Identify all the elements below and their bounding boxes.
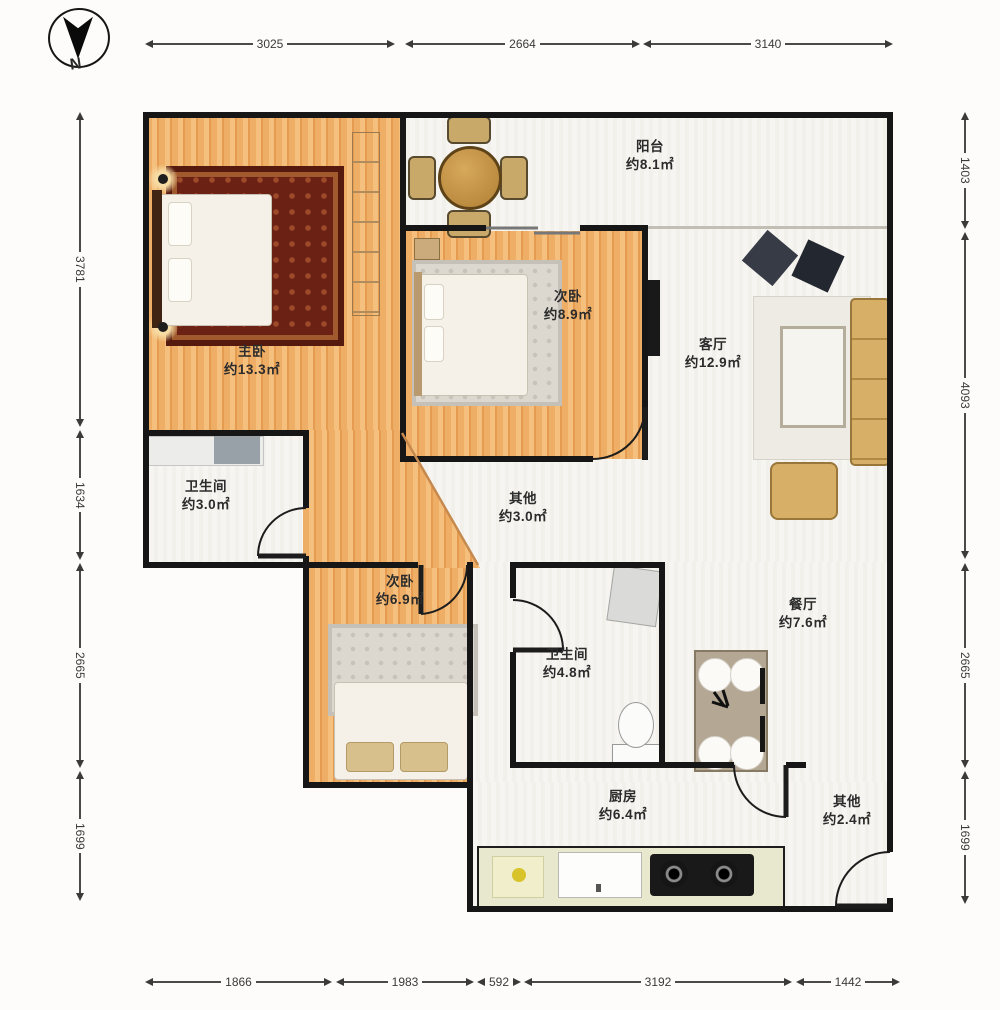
burner-icon: [710, 860, 738, 888]
dim-line: [964, 188, 966, 221]
dim-line: [79, 683, 81, 760]
dim-left-4: 1699: [73, 771, 87, 901]
wall-segment: [303, 782, 473, 788]
wall-segment: [303, 430, 309, 508]
dim-line: [413, 43, 505, 45]
dim-line: [675, 981, 784, 983]
wall-segment: [143, 562, 309, 568]
nightstand: [414, 238, 440, 260]
bedside-lamp: [158, 174, 168, 184]
room-name: 次卧: [488, 288, 648, 306]
dim-line: [79, 438, 81, 478]
wall-segment: [659, 562, 665, 768]
pillow: [168, 202, 192, 246]
pillow: [424, 284, 444, 320]
wall-segment: [887, 112, 893, 852]
room-area: 约6.4㎡: [548, 806, 698, 824]
arrow-left-icon: [145, 40, 153, 48]
room-area: 约3.0㎡: [136, 496, 276, 514]
dim-bottom-4: 3192: [524, 975, 792, 989]
burner-icon: [660, 860, 688, 888]
dim-line: [79, 779, 81, 819]
floorplan-canvas: N 3025 2664 3140 1866 1983 592 3192 1: [0, 0, 1000, 1010]
room-name: 其他: [448, 490, 598, 508]
round-table: [438, 146, 502, 210]
arrow-down-icon: [76, 893, 84, 901]
dim-top-3: 3140: [643, 37, 893, 51]
dim-line: [964, 413, 966, 551]
room-name: 主卧: [177, 343, 327, 361]
room-area: 约2.4㎡: [772, 811, 922, 829]
dim-value: 3192: [641, 976, 676, 988]
room-label-dining: 餐厅 约7.6㎡: [728, 596, 878, 631]
arrow-left-icon: [796, 978, 804, 986]
arrow-right-icon: [513, 978, 521, 986]
plate: [730, 736, 764, 770]
dim-right-3: 2665: [958, 563, 972, 768]
arrow-left-icon: [145, 978, 153, 986]
arrow-down-icon: [961, 896, 969, 904]
dim-line: [964, 683, 966, 760]
room-label-other1: 其他 约3.0㎡: [448, 490, 598, 525]
dim-value: 1866: [221, 976, 256, 988]
room-label-bedroom2: 次卧 约8.9㎡: [488, 288, 648, 323]
dim-line: [256, 981, 324, 983]
dim-value: 1403: [959, 153, 971, 188]
room-name: 阳台: [560, 138, 740, 156]
room-name: 次卧: [325, 573, 475, 591]
dim-line: [344, 981, 388, 983]
arrow-up-icon: [961, 232, 969, 240]
room-area: 约12.9㎡: [638, 354, 788, 372]
dim-line: [804, 981, 831, 983]
sink: [214, 436, 260, 464]
room-name: 厨房: [548, 788, 698, 806]
bedside-lamp: [158, 322, 168, 332]
arrow-left-icon: [336, 978, 344, 986]
dim-line: [865, 981, 892, 983]
wall-segment: [786, 762, 806, 768]
dim-right-2: 4093: [958, 232, 972, 559]
bed-headboard: [152, 190, 162, 328]
arrow-up-icon: [961, 771, 969, 779]
wall-segment: [303, 562, 418, 568]
dim-top-1: 3025: [145, 37, 395, 51]
dim-left-2: 1634: [73, 430, 87, 560]
room-area: 约8.9㎡: [488, 306, 648, 324]
dim-line: [964, 855, 966, 896]
arrow-up-icon: [76, 771, 84, 779]
dim-value: 2665: [74, 648, 86, 683]
dim-value: 1699: [959, 820, 971, 855]
room-area: 约3.0㎡: [448, 508, 598, 526]
arrow-left-icon: [477, 978, 485, 986]
room-area: 约6.9㎡: [325, 591, 475, 609]
wall-segment: [467, 782, 473, 912]
room-name: 其他: [772, 793, 922, 811]
arrow-left-icon: [524, 978, 532, 986]
arrow-left-icon: [405, 40, 413, 48]
balcony-chair: [447, 116, 491, 144]
arrow-right-icon: [632, 40, 640, 48]
wall-segment: [143, 112, 893, 118]
arrow-right-icon: [324, 978, 332, 986]
dim-line: [153, 43, 253, 45]
compass: N: [44, 4, 118, 80]
fruit-bowl: [512, 868, 526, 882]
wall-segment: [659, 762, 734, 768]
plate: [698, 658, 732, 692]
dim-line: [422, 981, 466, 983]
wall-segment: [400, 112, 406, 462]
bed-headboard: [414, 272, 422, 396]
dim-left-1: 3781: [73, 112, 87, 427]
dim-value: 2665: [959, 648, 971, 683]
room-area: 约8.1㎡: [560, 156, 740, 174]
dim-line: [785, 43, 885, 45]
room-label-bath2: 卫生间 约4.8㎡: [492, 646, 642, 681]
dim-bottom-3: 592: [477, 975, 521, 989]
dim-line: [532, 981, 641, 983]
arrow-down-icon: [76, 419, 84, 427]
room-label-bath1: 卫生间 约3.0㎡: [136, 478, 276, 513]
dim-value: 1699: [74, 819, 86, 854]
room-label-living: 客厅 约12.9㎡: [638, 336, 788, 371]
room-label-master: 主卧 约13.3㎡: [177, 343, 327, 378]
wall-segment: [580, 225, 648, 231]
dim-bottom-1: 1866: [145, 975, 332, 989]
pillow: [424, 326, 444, 362]
arrow-right-icon: [892, 978, 900, 986]
dim-line: [79, 287, 81, 419]
dim-line: [964, 240, 966, 378]
wall-segment: [510, 562, 516, 598]
room-name: 餐厅: [728, 596, 878, 614]
arrow-right-icon: [466, 978, 474, 986]
dim-line: [964, 779, 966, 820]
room-area: 约13.3㎡: [177, 361, 327, 379]
coffee-table: [780, 326, 846, 428]
wall-segment: [887, 898, 893, 912]
wall-segment: [402, 456, 593, 462]
arrow-up-icon: [76, 430, 84, 438]
compass-north-label: N: [69, 55, 83, 74]
arrow-down-icon: [76, 760, 84, 768]
wall-segment: [143, 430, 309, 436]
room-area: 约7.6㎡: [728, 614, 878, 632]
dim-right-1: 1403: [958, 112, 972, 229]
pillow: [346, 742, 394, 772]
sofa: [850, 298, 890, 466]
arrow-down-icon: [76, 552, 84, 560]
dim-line: [153, 981, 221, 983]
dim-value: 1983: [388, 976, 423, 988]
room-label-other2: 其他 约2.4㎡: [772, 793, 922, 828]
dim-value: 4093: [959, 378, 971, 413]
arrow-down-icon: [961, 760, 969, 768]
dim-value: 592: [485, 976, 513, 988]
arrow-left-icon: [643, 40, 651, 48]
dim-value: 2664: [505, 38, 540, 50]
toilet-bowl: [618, 702, 654, 748]
arrow-right-icon: [387, 40, 395, 48]
dim-line: [79, 571, 81, 648]
wall-segment: [303, 562, 309, 788]
plate: [730, 658, 764, 692]
dim-left-3: 2665: [73, 563, 87, 768]
dim-line: [540, 43, 632, 45]
dim-top-2: 2664: [405, 37, 640, 51]
pillow: [168, 258, 192, 302]
room-name: 卫生间: [492, 646, 642, 664]
wall-stub: [760, 716, 765, 752]
dim-right-4: 1699: [958, 771, 972, 904]
dim-line: [964, 120, 966, 153]
room-name: 卫生间: [136, 478, 276, 496]
wall-segment: [402, 225, 486, 231]
room-label-kitchen: 厨房 约6.4㎡: [548, 788, 698, 823]
dim-bottom-5: 1442: [796, 975, 900, 989]
dim-value: 1634: [74, 478, 86, 513]
wardrobe: [352, 132, 380, 316]
arrow-down-icon: [961, 221, 969, 229]
wall-stub: [760, 668, 765, 704]
room-label-bedroom3: 次卧 约6.9㎡: [325, 573, 475, 608]
dim-line: [79, 853, 81, 893]
dim-line: [964, 571, 966, 648]
arrow-up-icon: [961, 112, 969, 120]
balcony-chair: [500, 156, 528, 200]
dim-value: 3781: [74, 252, 86, 287]
dim-line: [287, 43, 387, 45]
balcony-living-divider: [648, 226, 887, 229]
arrow-up-icon: [961, 563, 969, 571]
room-name: 客厅: [638, 336, 788, 354]
wall-segment: [467, 906, 893, 912]
wall-segment: [510, 762, 665, 768]
arrow-up-icon: [76, 563, 84, 571]
arrow-right-icon: [784, 978, 792, 986]
dim-value: 1442: [831, 976, 866, 988]
armchair: [770, 462, 838, 520]
dim-line: [79, 120, 81, 252]
pillow: [400, 742, 448, 772]
arrow-right-icon: [885, 40, 893, 48]
wall-segment: [510, 562, 665, 568]
dim-value: 3140: [751, 38, 786, 50]
dim-value: 3025: [253, 38, 288, 50]
balcony-chair: [408, 156, 436, 200]
dim-line: [651, 43, 751, 45]
room-area: 约4.8㎡: [492, 664, 642, 682]
dim-bottom-2: 1983: [336, 975, 474, 989]
arrow-down-icon: [961, 551, 969, 559]
dim-line: [79, 512, 81, 552]
faucet: [596, 884, 601, 892]
balcony-chair: [447, 210, 491, 238]
washing-machine: [606, 565, 663, 627]
room-label-balcony: 阳台 约8.1㎡: [560, 138, 740, 173]
arrow-up-icon: [76, 112, 84, 120]
